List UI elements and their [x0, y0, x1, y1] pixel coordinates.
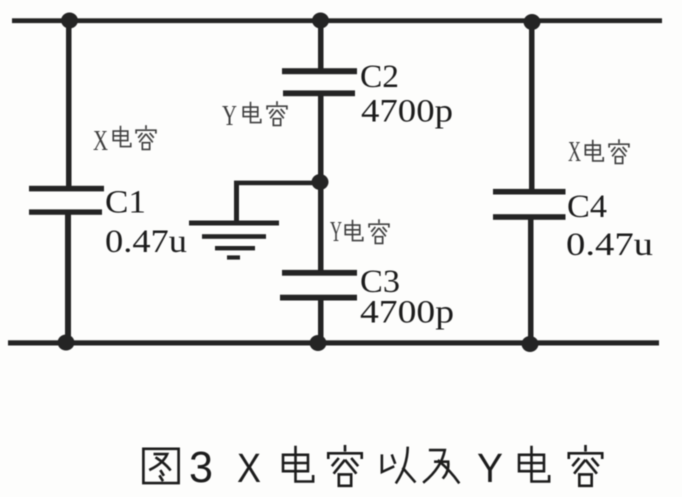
svg-text:3: 3	[189, 443, 213, 492]
svg-text:X: X	[568, 136, 581, 168]
svg-text:Y: Y	[222, 100, 237, 132]
svg-text:X: X	[93, 125, 108, 157]
svg-text:C4: C4	[567, 189, 607, 225]
svg-text:0.47u: 0.47u	[566, 227, 653, 263]
svg-text:4700p: 4700p	[361, 94, 453, 130]
svg-text:C2: C2	[360, 59, 399, 95]
svg-text:4700p: 4700p	[360, 295, 454, 331]
svg-text:C1: C1	[105, 185, 146, 221]
svg-text:Y: Y	[477, 445, 503, 491]
svg-text:X: X	[237, 445, 261, 491]
svg-text:Y: Y	[330, 217, 342, 248]
svg-text:0.47u: 0.47u	[105, 224, 187, 260]
